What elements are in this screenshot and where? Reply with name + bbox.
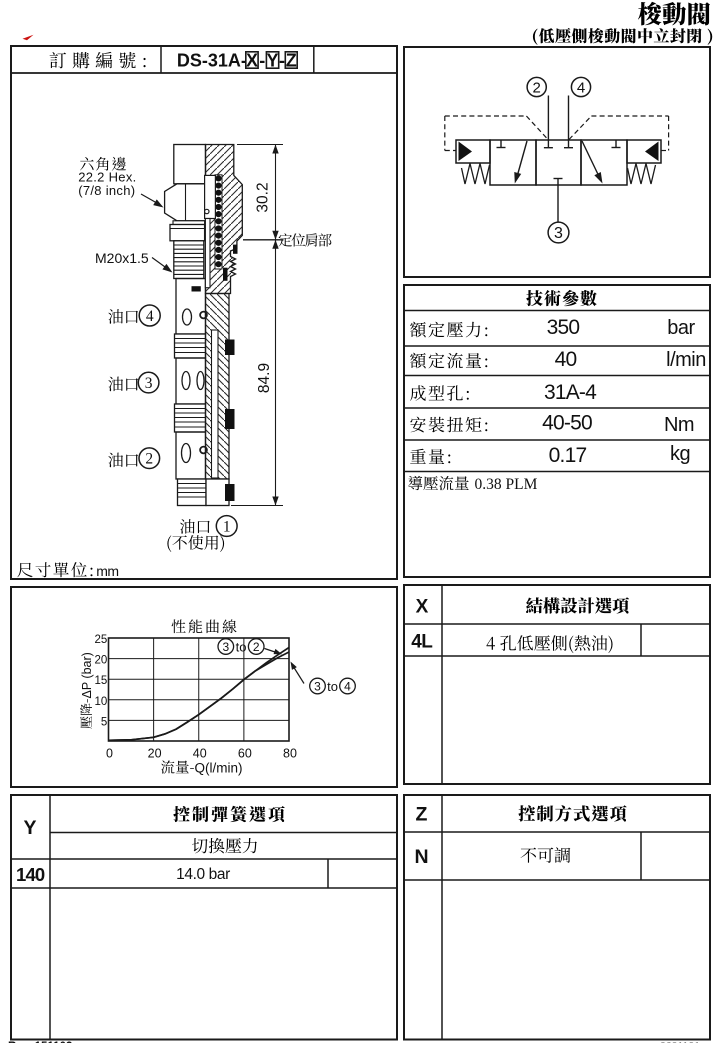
svg-text:20: 20 [95, 655, 108, 667]
svg-text:3: 3 [314, 679, 321, 693]
svg-text:Z: Z [416, 804, 428, 826]
svg-text:3: 3 [145, 375, 153, 392]
svg-text:25: 25 [95, 634, 108, 646]
svg-text:Nm: Nm [664, 414, 694, 436]
svg-text:40-50: 40-50 [542, 412, 592, 435]
svg-text:40: 40 [555, 348, 577, 371]
svg-text:4: 4 [577, 79, 585, 96]
svg-text:(7/8 inch): (7/8 inch) [78, 183, 135, 198]
svg-text:140: 140 [16, 864, 45, 885]
svg-text:mm: mm [96, 563, 118, 579]
svg-text:-: - [259, 51, 265, 71]
svg-text:Y: Y [23, 817, 36, 839]
svg-text:-: - [279, 51, 285, 71]
svg-text:80: 80 [283, 747, 297, 761]
svg-text:10: 10 [95, 696, 108, 708]
svg-text:31A-4: 31A-4 [544, 381, 597, 404]
svg-text:0: 0 [106, 747, 113, 761]
svg-text:4: 4 [146, 308, 154, 325]
svg-text:X: X [416, 597, 429, 618]
svg-text:3: 3 [222, 640, 229, 654]
svg-text:0.17: 0.17 [549, 444, 587, 467]
svg-text:4: 4 [344, 679, 351, 693]
svg-text:30.2: 30.2 [255, 182, 272, 212]
svg-text:N: N [414, 846, 428, 868]
svg-text:60: 60 [238, 747, 252, 761]
svg-text:2: 2 [145, 451, 153, 468]
svg-text:to: to [327, 679, 338, 694]
svg-text:l/min: l/min [666, 349, 706, 371]
svg-text:ΔP (bar): ΔP (bar) [80, 652, 94, 698]
svg-text:0.38 PLM: 0.38 PLM [475, 476, 538, 493]
svg-text:20: 20 [148, 747, 162, 761]
svg-text:bar: bar [667, 317, 695, 339]
svg-text:to: to [236, 640, 247, 655]
svg-text:M20x1.5: M20x1.5 [95, 250, 149, 266]
svg-text:DS-31A-: DS-31A- [177, 51, 247, 71]
svg-text:14.0 bar: 14.0 bar [176, 866, 230, 883]
svg-text:15: 15 [95, 675, 108, 687]
svg-text:2: 2 [533, 79, 541, 96]
svg-text:2: 2 [253, 640, 260, 654]
svg-text:Q(l/min): Q(l/min) [195, 761, 243, 776]
svg-text:3: 3 [554, 225, 563, 242]
svg-text:4L: 4L [411, 632, 433, 653]
svg-text:1: 1 [223, 519, 231, 536]
svg-text:5: 5 [101, 716, 107, 728]
svg-text:kg: kg [670, 443, 690, 465]
svg-text:350: 350 [547, 316, 580, 339]
svg-text:84.9: 84.9 [256, 363, 273, 393]
svg-text:40: 40 [193, 747, 207, 761]
